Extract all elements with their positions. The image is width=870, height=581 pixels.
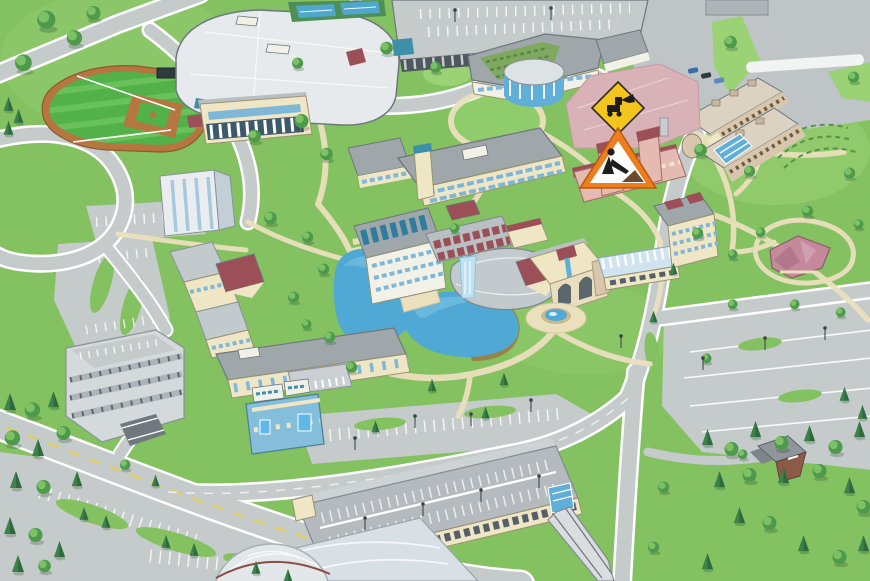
library-waterfall-outlet [460, 256, 476, 298]
campus-map-canvas: Stylized bird's-eye illustration of a un… [0, 0, 870, 581]
north-service-structure [706, 0, 768, 15]
round-auditorium[interactable] [504, 59, 564, 107]
campus-map[interactable]: Illustrated university campus map — isom… [0, 0, 870, 581]
chimney [660, 118, 668, 136]
west-tower-hall[interactable] [160, 170, 235, 236]
fountain-plaza [526, 303, 586, 333]
